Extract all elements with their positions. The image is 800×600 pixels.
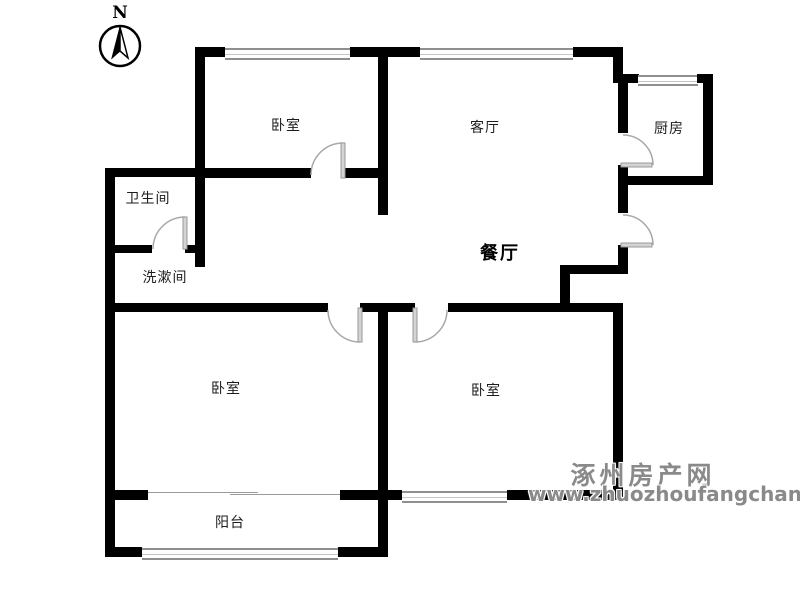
- room-label-dining-room: 餐厅: [480, 239, 520, 265]
- room-label-bedroom-right: 卧室: [471, 380, 501, 400]
- door-swing: [623, 215, 653, 245]
- room-label-washroom: 洗漱间: [143, 267, 188, 287]
- door-swing: [328, 310, 360, 342]
- door-leaf: [341, 143, 345, 178]
- door-swing: [153, 217, 185, 249]
- compass-north-label: N: [96, 4, 144, 22]
- door-leaf: [621, 243, 652, 247]
- room-label-bathroom: 卫生间: [126, 188, 171, 208]
- door-swing: [623, 135, 653, 165]
- room-label-bedroom-left: 卧室: [211, 378, 241, 398]
- door-leaf: [413, 308, 417, 342]
- room-label-kitchen: 厨房: [654, 118, 684, 138]
- room-label-living-room: 客厅: [470, 117, 500, 137]
- room-label-bedroom-top: 卧室: [271, 115, 301, 135]
- compass-needle-icon: [97, 22, 143, 70]
- door-swing: [311, 143, 343, 175]
- door-swings-layer: [0, 0, 800, 600]
- door-leaf: [621, 163, 652, 167]
- door-leaf: [358, 308, 362, 342]
- door-leaf: [183, 217, 187, 249]
- floor-plan: N 卧室 客厅 厨房 卫生间 洗漱间 餐厅 卧室 卧室 阳台 涿州房产网 www…: [0, 0, 800, 600]
- room-label-balcony: 阳台: [215, 512, 245, 532]
- watermark-site-url: www.zhuozhoufangchan.com: [528, 482, 794, 506]
- door-swing: [415, 310, 447, 342]
- compass-icon: N: [96, 4, 144, 74]
